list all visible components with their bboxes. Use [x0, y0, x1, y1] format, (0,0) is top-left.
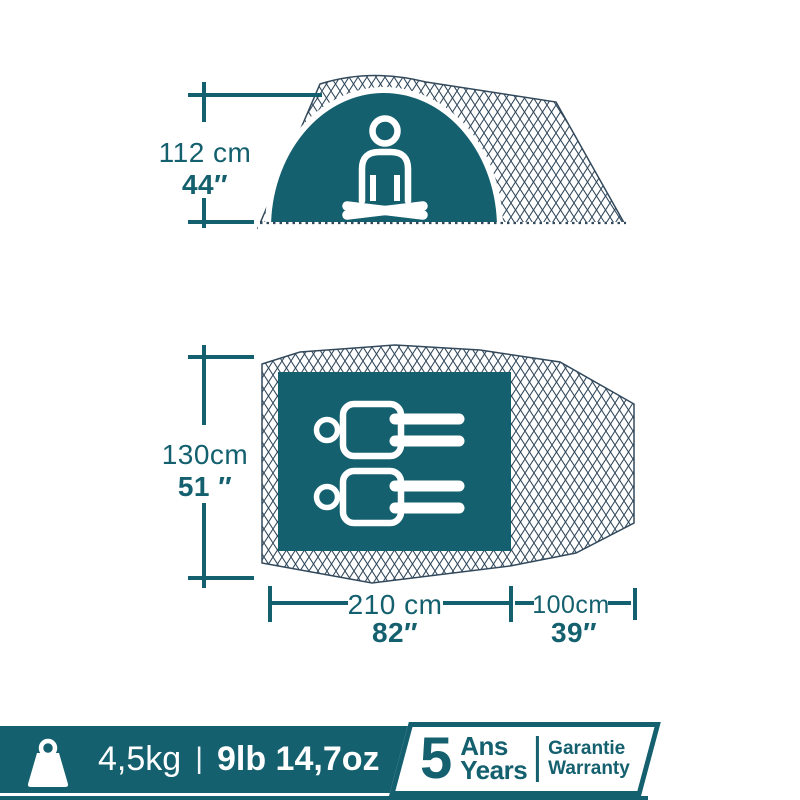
- height-dim-cap-top: [188, 93, 322, 97]
- plan-width-imperial: 51 ″: [145, 472, 265, 501]
- bottom-accent-strip: [0, 796, 648, 800]
- tent-floor-plan: [255, 340, 650, 590]
- warranty-number: 5: [420, 730, 451, 788]
- bedroom-length-metric: 210 cm: [340, 590, 450, 619]
- weight-values: 4,5kg | 9lb 14,7oz: [98, 726, 380, 793]
- porch-dim-tick-right: [633, 588, 637, 620]
- weight-imperial: 9lb 14,7oz: [217, 740, 380, 779]
- side-height-imperial: 44″: [145, 170, 265, 199]
- height-dim-cap-bottom: [188, 220, 254, 224]
- weight-icon: [24, 738, 72, 790]
- warranty-label-fr: Garantie: [548, 739, 630, 759]
- weight-metric: 4,5kg: [98, 740, 181, 779]
- length-dim-seg-left: [272, 601, 348, 605]
- warranty-divider: [536, 736, 539, 782]
- porch-dim-seg-right: [608, 601, 631, 605]
- warranty-badge: 5 Ans Years Garantie Warranty: [389, 722, 661, 796]
- side-height-metric: 112 cm: [145, 138, 265, 167]
- length-dim-tick-mid: [509, 586, 513, 622]
- width-dim-cap-top: [188, 355, 254, 359]
- warranty-duration-en: Years: [460, 759, 527, 783]
- plan-width-metric: 130cm: [145, 440, 265, 469]
- tent-spec-infographic: 112 cm 44″ 130cm 51 ″ 210 cm: [0, 0, 800, 800]
- weight-separator: |: [195, 742, 203, 776]
- warranty-label-en: Warranty: [548, 759, 630, 779]
- length-dim-seg-right: [443, 601, 509, 605]
- porch-length-metric: 100cm: [528, 592, 614, 618]
- warranty-badge-content: 5 Ans Years Garantie Warranty: [404, 727, 646, 791]
- porch-length-imperial: 39″: [524, 618, 624, 647]
- height-dim-line-top-seg: [202, 82, 206, 122]
- width-dim-cap-bottom: [188, 576, 254, 580]
- bedroom-length-imperial: 82″: [340, 618, 450, 647]
